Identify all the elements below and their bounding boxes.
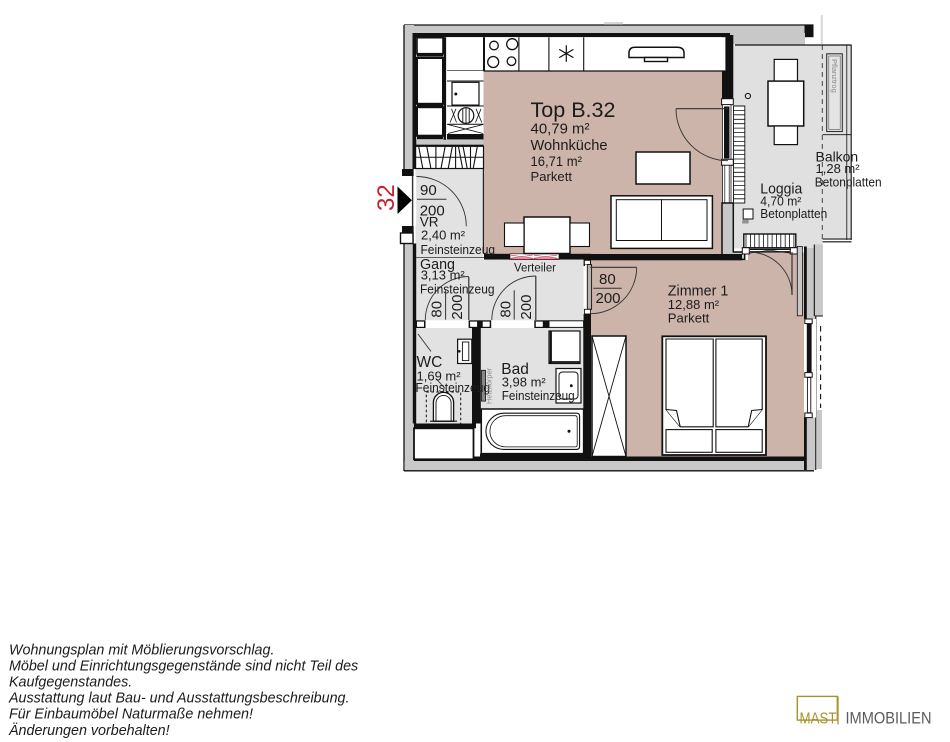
svg-text:IMMOBILIEN: IMMOBILIEN <box>846 710 932 728</box>
svg-text:Feinsteinzeug: Feinsteinzeug <box>421 243 496 257</box>
svg-text:Verteiler: Verteiler <box>514 263 556 275</box>
svg-text:Für Einbaumöbel Naturmaße nehm: Für Einbaumöbel Naturmaße nehmen! <box>9 707 253 723</box>
svg-text:Änderungen vorbehalten!: Änderungen vorbehalten! <box>8 722 170 739</box>
svg-text:Möbel und Einrichtungsgegenstä: Möbel und Einrichtungsgegenstände sind n… <box>9 658 358 674</box>
svg-text:32: 32 <box>373 184 400 211</box>
svg-text:2,40 m²: 2,40 m² <box>421 228 466 243</box>
svg-text:16,71 m²: 16,71 m² <box>531 154 583 169</box>
svg-text:3,13 m²: 3,13 m² <box>421 268 466 283</box>
svg-text:200: 200 <box>449 295 466 320</box>
svg-text:200: 200 <box>518 295 535 320</box>
svg-text:MAST: MAST <box>800 711 837 728</box>
svg-text:40,79 m²: 40,79 m² <box>531 120 590 137</box>
svg-text:Betonplatten: Betonplatten <box>760 206 827 221</box>
svg-text:Kaufgegenstandes.: Kaufgegenstandes. <box>9 675 132 691</box>
svg-text:Parkett: Parkett <box>668 310 710 325</box>
svg-text:3,98 m²: 3,98 m² <box>502 375 547 390</box>
svg-text:Feinsteinzeug: Feinsteinzeug <box>502 389 575 403</box>
svg-text:AB: AB <box>742 220 750 226</box>
svg-text:Ausstattung laut Bau- und Auss: Ausstattung laut Bau- und Ausstattungsbe… <box>8 691 349 707</box>
svg-text:Betonplatten: Betonplatten <box>815 175 882 190</box>
svg-text:Top B.32: Top B.32 <box>531 99 616 122</box>
svg-text:Parkett: Parkett <box>531 169 573 184</box>
svg-text:80: 80 <box>599 271 616 288</box>
svg-text:Pflanztrog: Pflanztrog <box>830 59 839 93</box>
svg-text:90: 90 <box>420 182 437 199</box>
svg-text:80: 80 <box>428 301 445 318</box>
svg-text:200: 200 <box>596 290 621 307</box>
svg-text:Wohnungsplan mit Möblierungsvo: Wohnungsplan mit Möblierungsvorschlag. <box>9 642 274 658</box>
svg-text:80: 80 <box>498 301 515 318</box>
svg-text:Wohnküche: Wohnküche <box>531 138 608 154</box>
svg-text:Feinsteinzeug: Feinsteinzeug <box>416 381 491 395</box>
svg-text:Feinsteinzeug: Feinsteinzeug <box>420 282 495 296</box>
svg-text:Heizkörper: Heizkörper <box>485 367 494 404</box>
